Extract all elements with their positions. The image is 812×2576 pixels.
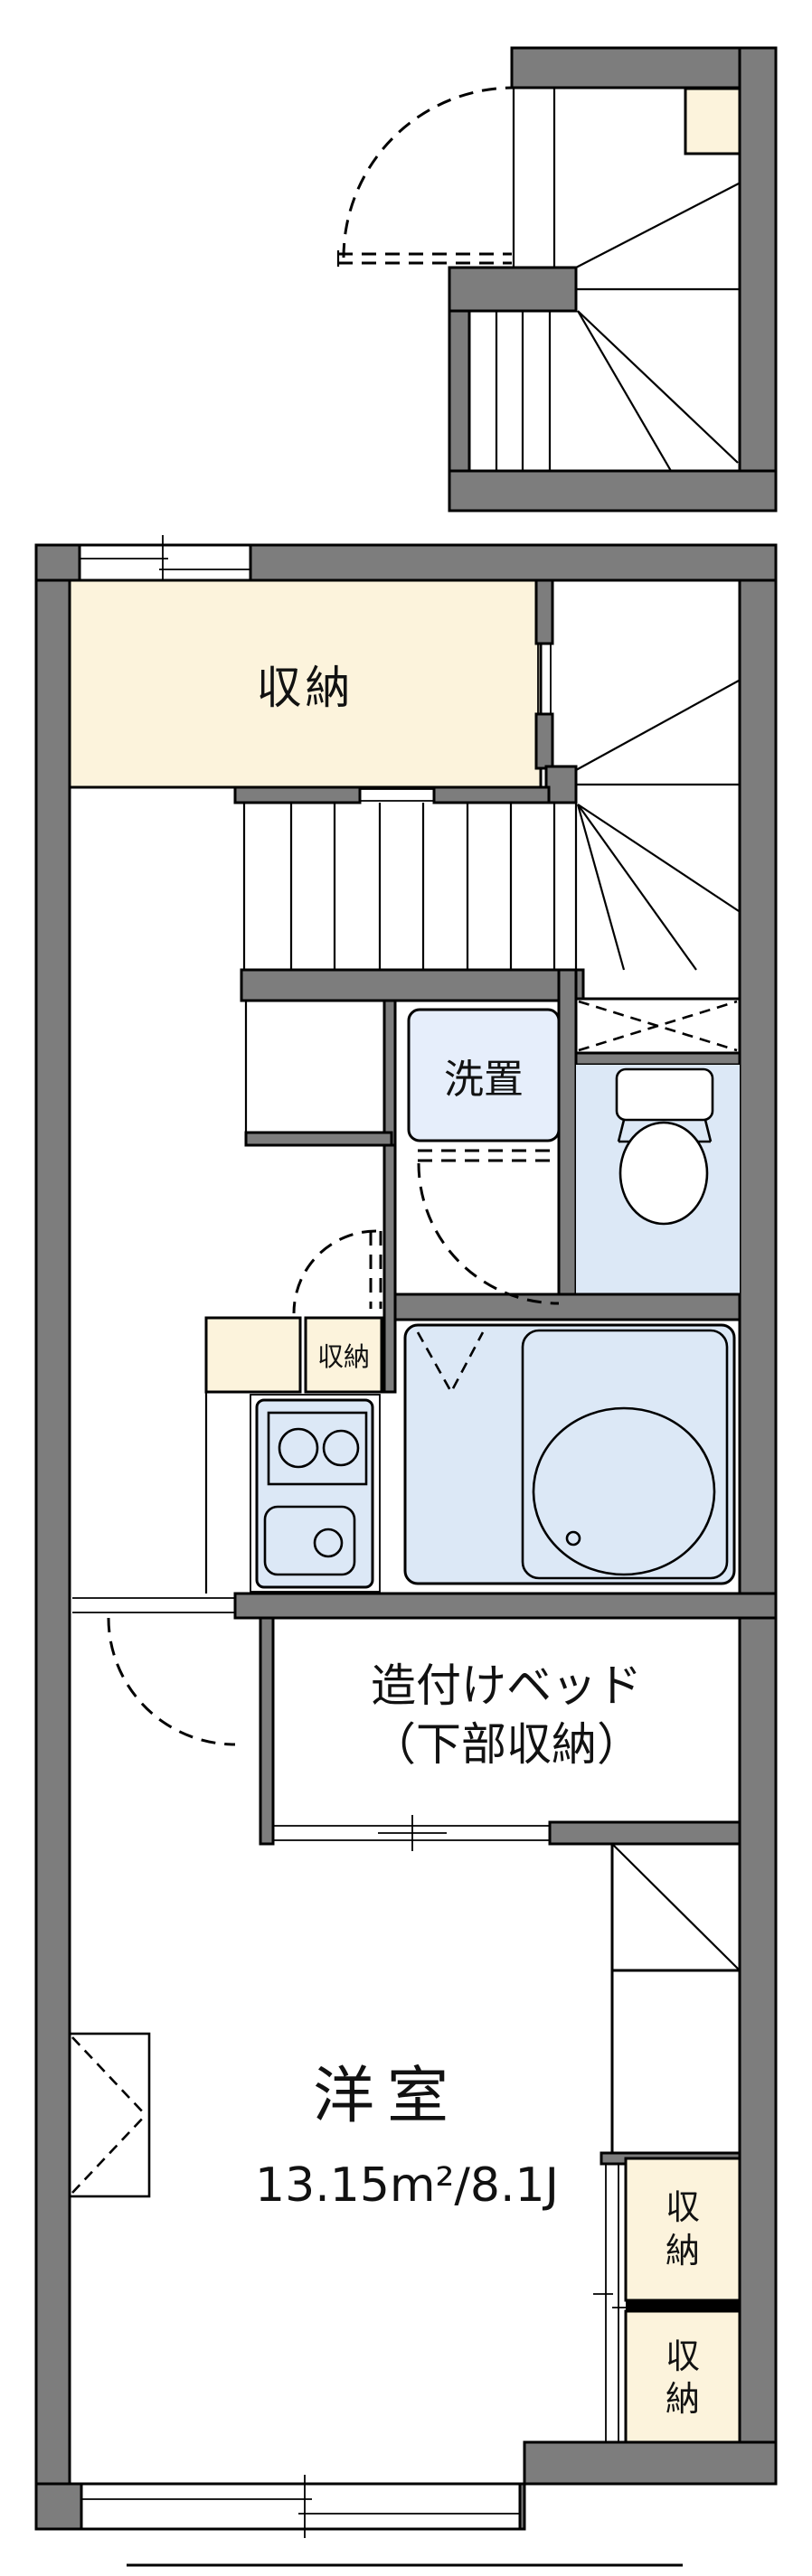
bottom-walls	[36, 2442, 776, 2565]
bed-left-wall	[260, 1618, 273, 1844]
stair-newel-block	[546, 766, 576, 803]
closet-divider	[626, 2300, 740, 2311]
entry-top-wall	[512, 48, 776, 88]
niche-door-line	[72, 2115, 146, 2193]
bottom-wall-right	[524, 2442, 776, 2484]
wall-segment	[536, 714, 552, 768]
entry-bottom-wall	[449, 471, 776, 511]
top-wall-corner	[36, 545, 80, 580]
kitchen-bottom-wall	[235, 1594, 776, 1618]
western-room	[70, 1844, 740, 2445]
entrance-door-swing-arc	[344, 88, 514, 258]
toilet-left-wall	[559, 970, 576, 1294]
bath-door-swing-arc	[294, 1231, 376, 1313]
left-wall	[36, 545, 70, 2529]
closet-and-stairs	[70, 580, 739, 1001]
toilet-bowl	[620, 1123, 707, 1224]
toilet-tank	[617, 1069, 713, 1120]
closet-right-upper-area	[626, 2158, 740, 2300]
step-box-lower	[612, 1970, 740, 2153]
wall-segment	[536, 580, 552, 644]
winder-tread-line	[578, 804, 696, 970]
stair-side-wall	[434, 787, 549, 803]
bed-end-wall	[550, 1822, 740, 1844]
winder-tread-line	[578, 804, 739, 911]
hall-bottom-wall	[246, 1133, 392, 1145]
top-wall	[250, 545, 776, 580]
stair-side-wall	[235, 787, 360, 803]
shoe-cabinet	[685, 89, 740, 154]
floor-plan: 収納 洗置 収納 造付けベッド （下部収納） 洋室 13.15m²/8.1J 収…	[0, 0, 812, 2576]
toilet-top-wall	[576, 1053, 740, 1065]
washer-pan	[409, 1010, 559, 1141]
entry-left-wall	[449, 311, 469, 471]
bed-module	[72, 1598, 740, 1851]
closet-main-area	[70, 580, 541, 787]
closet-right-lower-area	[626, 2311, 740, 2445]
top-window	[80, 545, 250, 580]
bathroom	[405, 1325, 734, 1584]
kitchen-cabinet	[206, 1318, 300, 1392]
room-door-swing-arc	[109, 1618, 235, 1744]
winder-tread-line	[576, 681, 739, 770]
storage-niche	[70, 2034, 149, 2196]
niche-door-line	[72, 2037, 146, 2115]
winder-tread-line	[578, 311, 738, 463]
hall-door-swing-arc	[419, 1163, 559, 1303]
kitchen-closet-small	[306, 1318, 382, 1392]
right-wall	[740, 580, 776, 2484]
bottom-window	[81, 2484, 520, 2529]
entry-stair-block	[338, 48, 776, 511]
toilet-bath-wall	[384, 1294, 740, 1320]
winder-tread-line	[578, 311, 671, 471]
entry-right-wall	[740, 48, 776, 511]
winder-tread-line	[576, 183, 739, 268]
stair-newel-block-upper	[449, 268, 576, 311]
washer-left-wall	[384, 1001, 395, 1145]
stair-bottom-wall	[241, 970, 583, 1001]
kitchen-bath-wall	[384, 1145, 395, 1392]
floor-plan-svg	[0, 0, 812, 2576]
